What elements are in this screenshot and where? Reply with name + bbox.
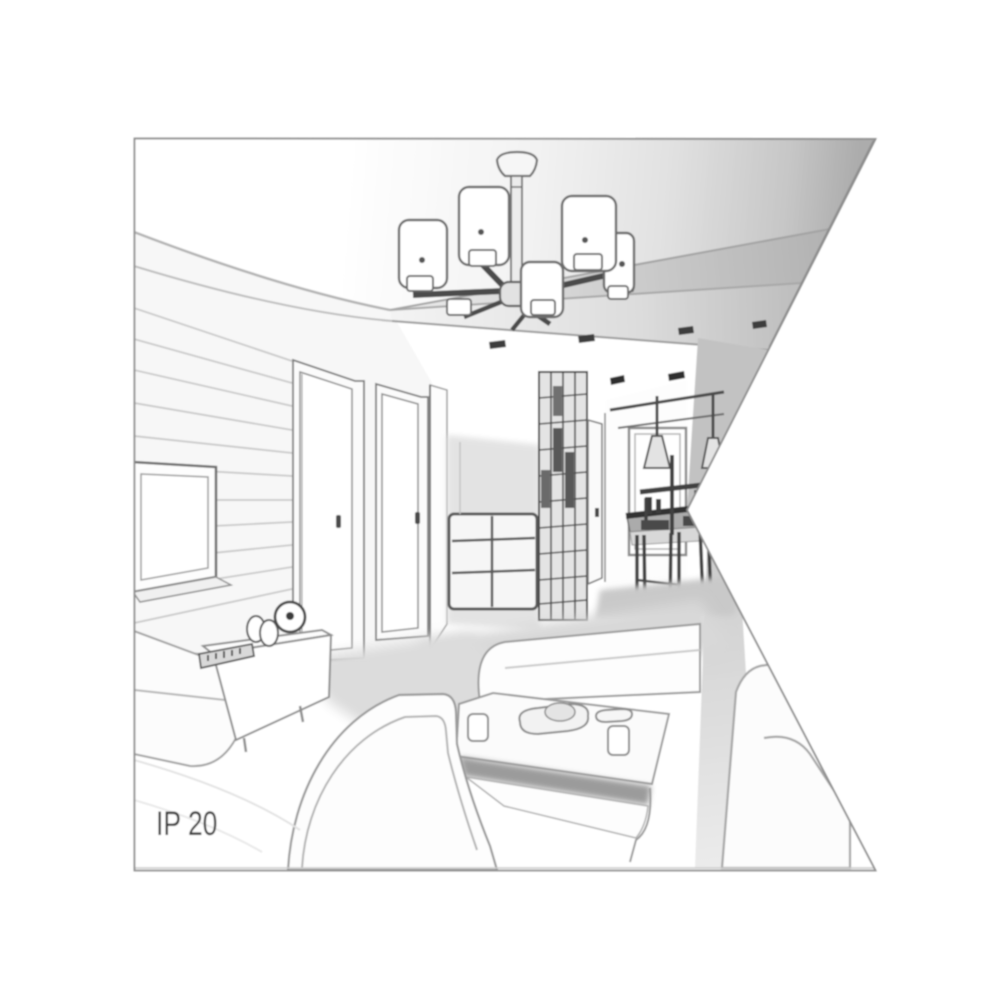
svg-text:IP 20: IP 20 <box>156 805 217 843</box>
